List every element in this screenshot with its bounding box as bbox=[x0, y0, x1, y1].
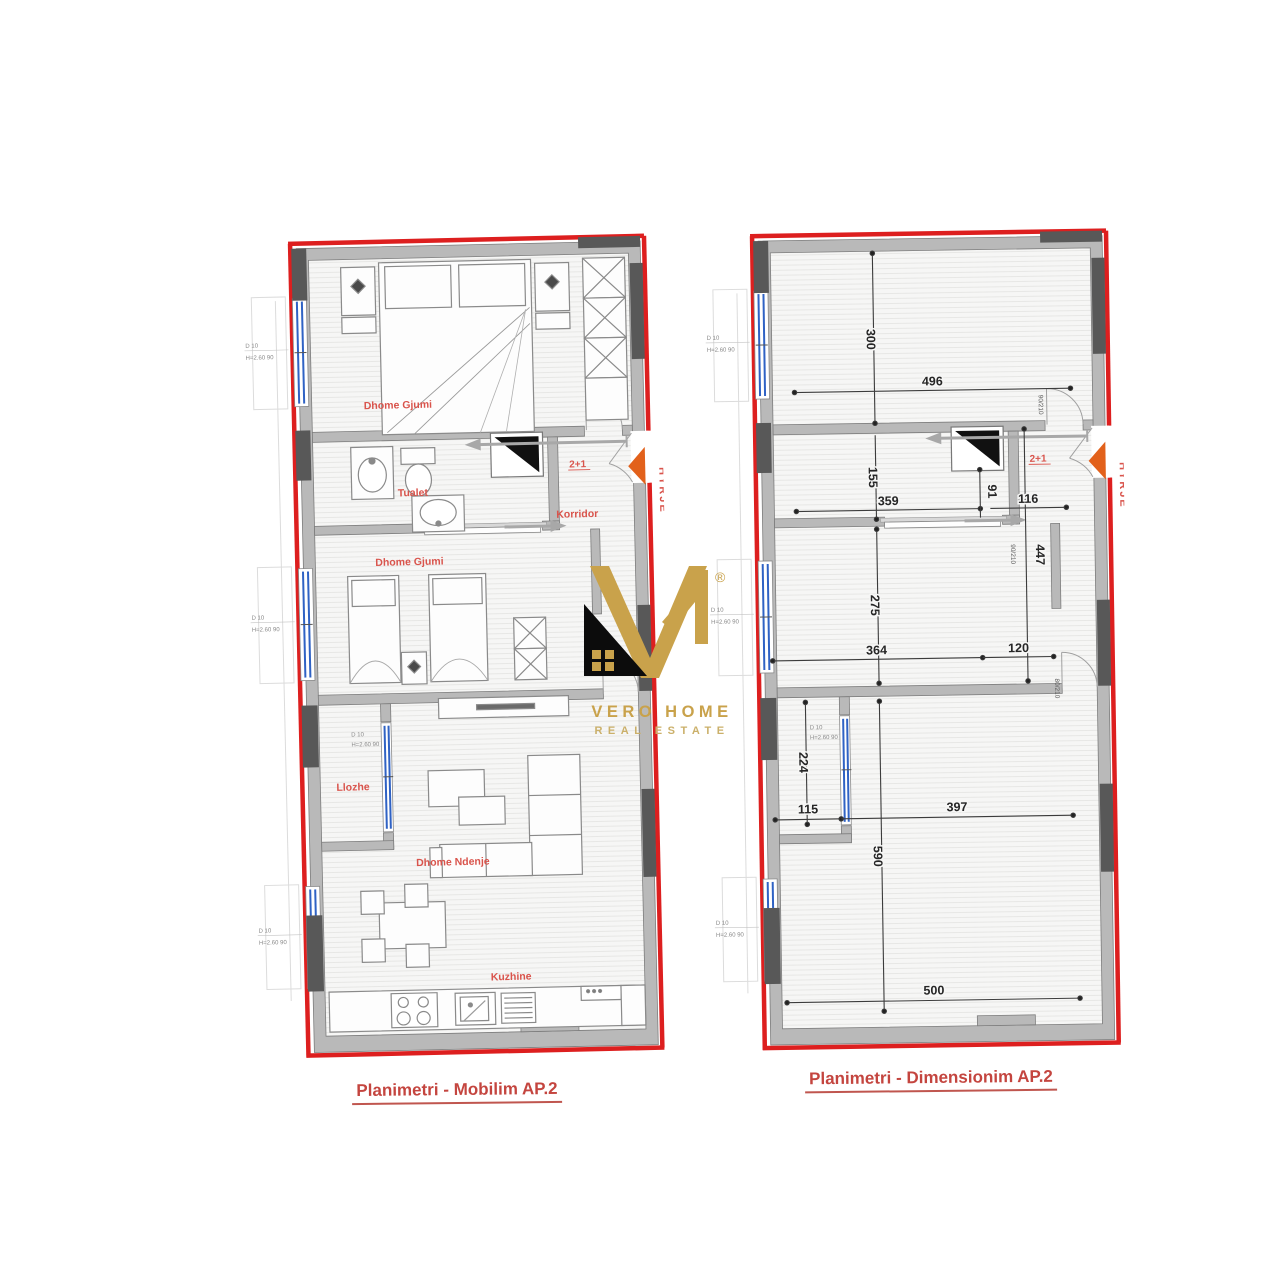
kitchen-counter bbox=[329, 985, 646, 1032]
dim-loggia-height: 224 bbox=[796, 752, 810, 773]
single-bed-2 bbox=[429, 573, 488, 681]
dim-toilet-height: 155 bbox=[866, 467, 880, 488]
dim-bedroom2-height: 275 bbox=[868, 595, 882, 616]
caption-furnished-text: Planimetri - Mobilim AP.2 bbox=[352, 1079, 561, 1105]
caption-dimension-text: Planimetri - Dimensionim AP.2 bbox=[805, 1067, 1057, 1094]
page: D 10 H=2.60 90 D 10 H=2.60 90 D 10 H=2.6… bbox=[0, 0, 1284, 1287]
room-label-corridor: Korridor bbox=[556, 508, 598, 521]
room-label-toilet: Tualet bbox=[398, 487, 429, 500]
dim-wardrobe-width: 120 bbox=[1008, 641, 1029, 655]
dim-bedroom1-width: 496 bbox=[922, 374, 943, 388]
dim-living-width: 397 bbox=[946, 800, 967, 814]
nightstand-left bbox=[341, 267, 376, 334]
kitchen-sink bbox=[455, 992, 496, 1025]
dish-rack bbox=[501, 992, 536, 1023]
wardrobe-small bbox=[514, 617, 547, 680]
dim-loggia-width: 115 bbox=[798, 802, 818, 816]
dim-shower-width: 91 bbox=[985, 484, 999, 498]
door-size-tag: 90/210 bbox=[1037, 395, 1044, 415]
wardrobe bbox=[582, 257, 628, 420]
door-size-tag: 90/210 bbox=[1009, 544, 1016, 564]
dim-living-height: 590 bbox=[871, 846, 885, 867]
floorplan-dimensions: 300 496 155 359 91 116 447 275 364 120 2… bbox=[700, 227, 1133, 1068]
logo-brand-tagline: REAL ESTATE bbox=[560, 725, 764, 737]
logo-h-stem bbox=[695, 570, 708, 644]
single-bed-1 bbox=[348, 575, 401, 683]
logo-monogram: ® bbox=[562, 558, 762, 696]
room-label-living: Dhome Ndenje bbox=[416, 855, 490, 869]
room-label-bedroom1: Dhome Gjumi bbox=[364, 399, 433, 413]
caption-dimension-plan: Planimetri - Dimensionim AP.2 bbox=[766, 1066, 1096, 1093]
dim-bedroom2-width: 364 bbox=[866, 643, 887, 657]
dim-bedroom1-height: 300 bbox=[864, 329, 878, 350]
registered-mark: ® bbox=[715, 569, 726, 585]
vero-home-logo: ® VERO HOME REAL ESTATE bbox=[560, 558, 764, 737]
nightstand-small bbox=[401, 652, 427, 685]
door-size-tag: 80/210 bbox=[1053, 678, 1060, 698]
room-label-loggia: Llozhe bbox=[336, 781, 370, 794]
dim-hall-height: 447 bbox=[1033, 544, 1047, 565]
dim-kitchen-width: 500 bbox=[923, 983, 944, 997]
tv-unit bbox=[438, 696, 568, 719]
logo-brand-name: VERO HOME bbox=[560, 703, 764, 722]
stove bbox=[391, 993, 438, 1028]
room-label-kitchen: Kuzhine bbox=[491, 971, 532, 984]
counter-appliance bbox=[581, 986, 621, 1001]
washbasin bbox=[412, 495, 465, 532]
bathroom-sink bbox=[351, 447, 394, 500]
dim-entry-width: 116 bbox=[1018, 492, 1038, 506]
caption-furnished-plan: Planimetri - Mobilim AP.2 bbox=[292, 1078, 622, 1105]
room-label-bedroom2: Dhome Gjumi bbox=[375, 555, 444, 569]
dim-toilet-width: 359 bbox=[878, 494, 899, 508]
nightstand-right bbox=[535, 263, 570, 330]
